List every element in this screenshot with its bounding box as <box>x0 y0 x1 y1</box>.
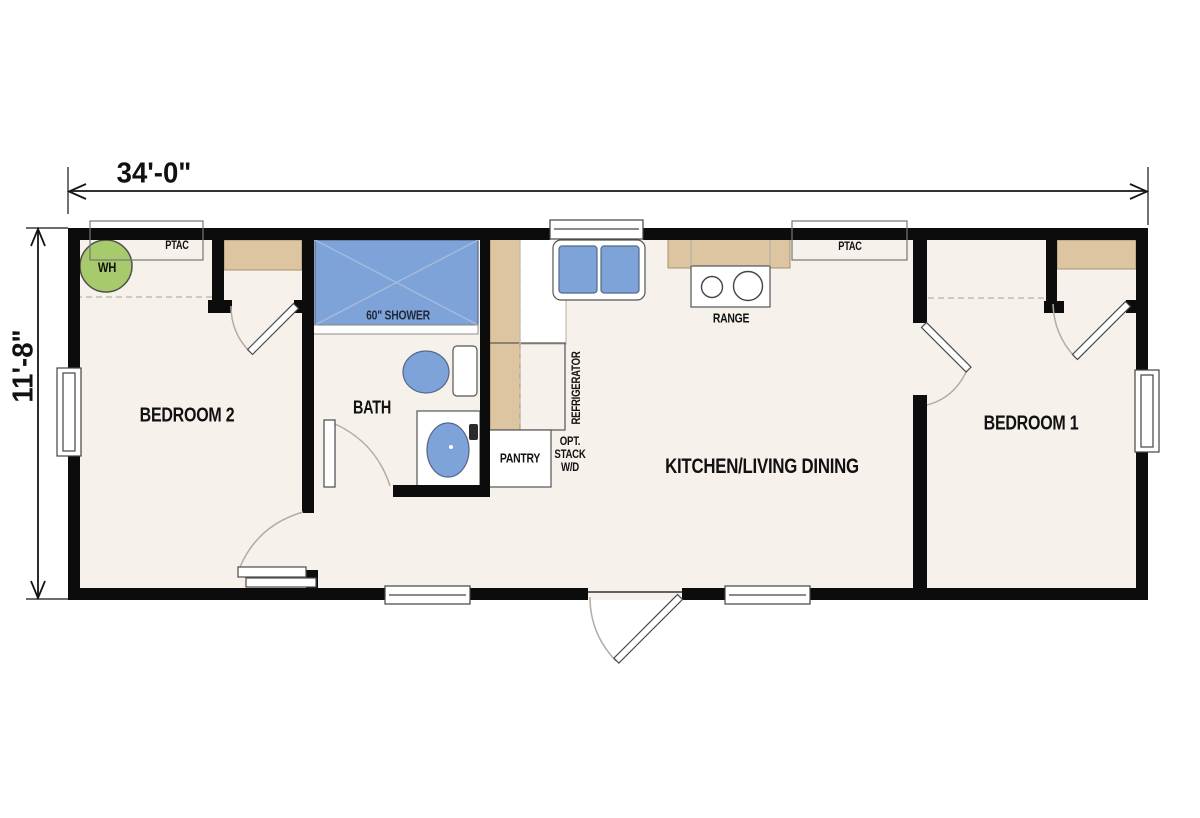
lavatory-bowl <box>427 423 469 477</box>
range-burner-small <box>702 277 723 298</box>
lavatory-drain <box>449 445 453 449</box>
wall-bedroom1-closet <box>1046 240 1057 302</box>
range-burner-large <box>734 272 763 301</box>
opt-stack-label-line3: W/D <box>561 460 579 474</box>
wall-bottom-4 <box>810 588 1148 600</box>
wall-right-1 <box>1136 228 1148 370</box>
toilet-bowl <box>403 351 449 393</box>
bedroom2-closet-shelf <box>224 240 302 270</box>
main-entry-door-leaf <box>614 595 683 664</box>
range-label: RANGE <box>713 311 749 326</box>
wall-bottom-1 <box>68 588 385 600</box>
room-label-bedroom2: BEDROOM 2 <box>140 405 235 428</box>
kitchen-sink-basin-left <box>559 246 597 293</box>
wall-bottom-2 <box>470 588 588 600</box>
dimension-width-label: 34'-0" <box>117 158 192 191</box>
wall-top-2 <box>643 228 1148 240</box>
ptac-right-label: PTAC <box>838 241 861 253</box>
kitchen-counter-left <box>490 238 520 430</box>
wall-right-2 <box>1136 452 1148 600</box>
shower-curb <box>312 325 478 334</box>
window-bedroom2-left-inner <box>63 373 75 451</box>
wall-bedroom2-closet <box>212 240 224 302</box>
wall-bath-bottom <box>393 485 490 497</box>
bath-door-leaf <box>324 420 335 487</box>
wall-left-2 <box>68 456 80 600</box>
bedroom2-entry-door-leaf <box>238 567 306 577</box>
opt-stack-label-line2: STACK <box>554 447 585 461</box>
wall-top-1 <box>68 228 550 240</box>
room-label-bedroom1: BEDROOM 1 <box>984 413 1079 436</box>
ptac-left-label: PTAC <box>165 240 188 252</box>
wall-left-1 <box>68 228 80 368</box>
refrigerator-label: REFRIGERATOR <box>569 351 583 424</box>
window-bedroom1-right-inner <box>1141 375 1153 447</box>
wall-bath-right <box>480 240 490 497</box>
wall-bath-left <box>302 240 314 513</box>
kitchen-sink-basin-right <box>601 246 639 293</box>
water-heater-label: WH <box>98 259 116 275</box>
shower-label: 60" SHOWER <box>366 308 430 323</box>
wall-divider-top <box>913 240 927 323</box>
wall-bottom-3 <box>682 588 725 600</box>
pantry-label: PANTRY <box>500 451 540 466</box>
floorplan-canvas: 34'-0" 11'-8" PTAC PTAC WH BEDROOM 2 BAT… <box>0 0 1200 818</box>
room-label-bath: BATH <box>353 398 391 419</box>
wall-divider-bottom <box>913 395 927 600</box>
kitchen-counter-range <box>668 238 790 268</box>
lavatory-faucet <box>469 424 478 440</box>
toilet-tank <box>453 346 477 396</box>
room-label-kitchen-living: KITCHEN/LIVING DINING <box>665 455 859 479</box>
opt-stack-label-line1: OPT. <box>560 434 580 448</box>
bedroom1-closet-shelf <box>1057 240 1136 269</box>
bedroom2-entry-door-leaf2 <box>246 578 316 587</box>
wall-bedroom2-closet-foot <box>208 300 232 313</box>
main-entry-door-arc <box>590 597 616 661</box>
dimension-height-label: 11'-8" <box>8 329 41 402</box>
